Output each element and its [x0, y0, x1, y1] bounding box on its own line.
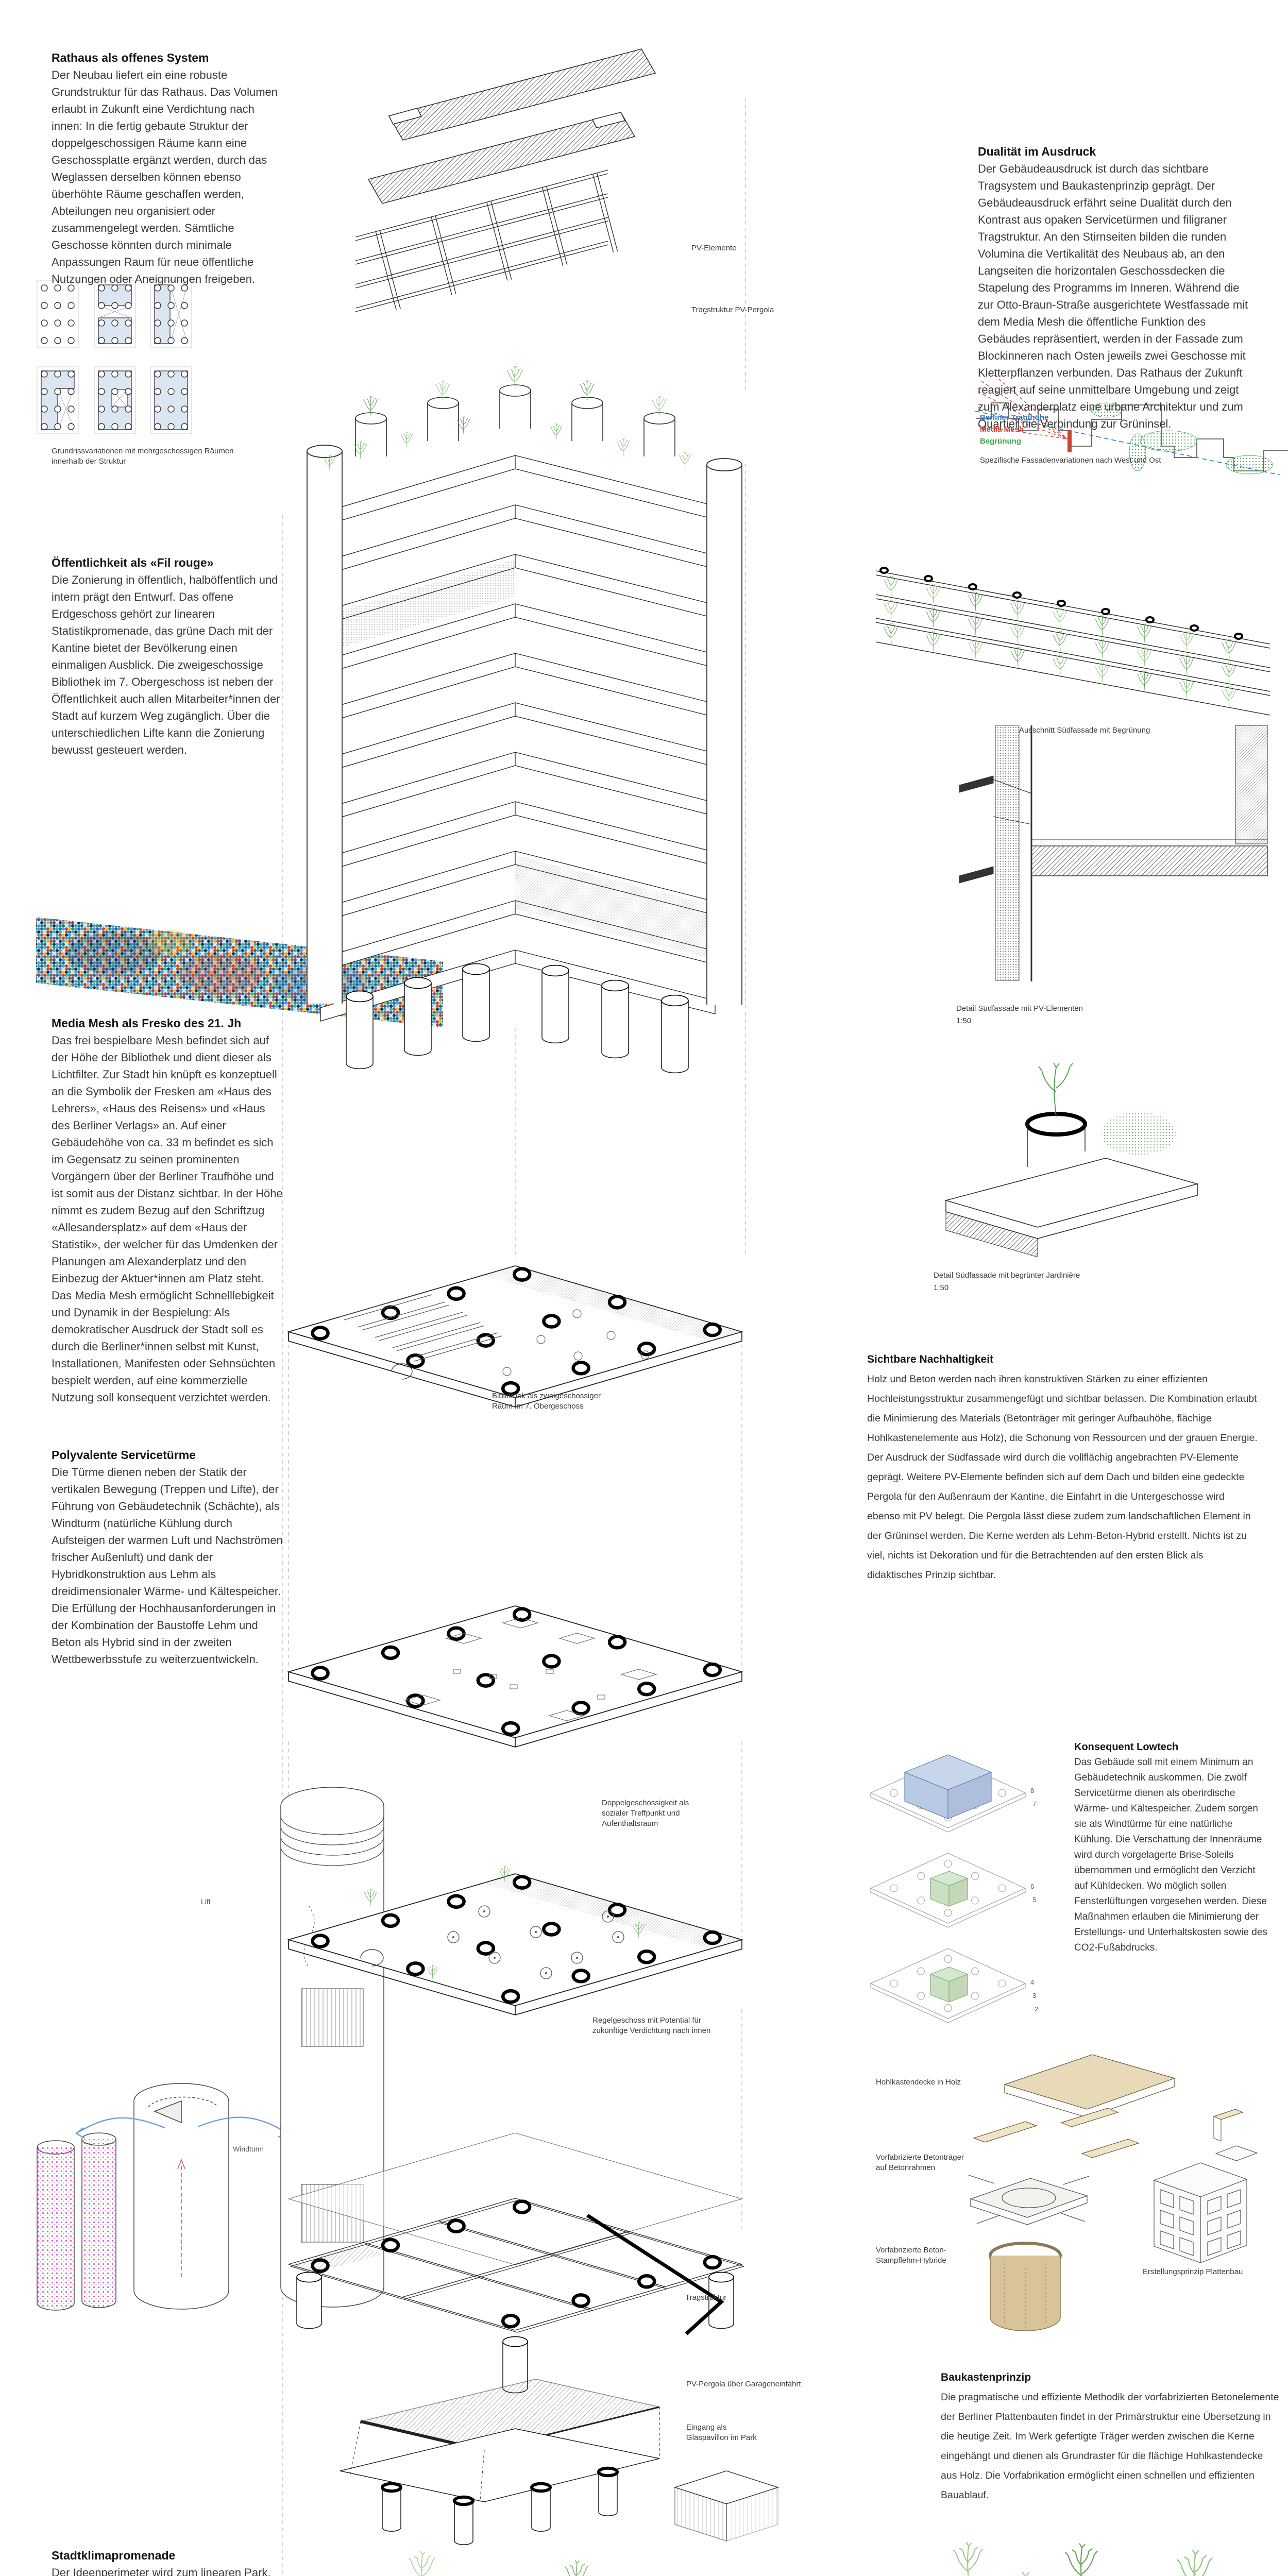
- floor-number: 5: [1032, 1896, 1036, 1904]
- label-hohlkastendecke: Hohlkastendecke in Holz: [876, 2077, 999, 2088]
- section-body: Das frei bespielbare Mesh befindet sich …: [52, 1032, 283, 1406]
- legend-media-mesh: Media Mesh: [980, 424, 1024, 435]
- section-oeffentlichkeit: Öffentlichkeit als «Fil rouge» Die Zonie…: [52, 554, 283, 758]
- caption-pv-elemente: PV-Elemente: [691, 243, 737, 253]
- section-body: Der Neubau liefert ein eine robuste Grun…: [52, 66, 278, 287]
- section-body: Die Zonierung in öffentlich, halböffentl…: [52, 571, 283, 758]
- caption-axon-regelgeschoss: Regelgeschoss mit Potential für zukünfti…: [592, 2015, 721, 2036]
- label-plattenbau: Erstellungsprinzip Plattenbau: [1143, 2267, 1277, 2277]
- section-body: Das Gebäude soll mit einem Minimum an Ge…: [1074, 1755, 1270, 1956]
- caption-detail-jardiniere: Detail Südfassade mit begrünter Jardiniè…: [934, 1270, 1129, 1281]
- caption-detail-pv: Detail Südfassade mit PV-Elementen: [956, 1004, 1126, 1014]
- caption-pergola: PV-Pergola über Garageneinfahrt: [686, 2379, 836, 2389]
- section-rathaus: Rathaus als offenes System Der Neubau li…: [52, 49, 278, 287]
- section-dualitaet: Dualität im Ausdruck Der Gebäudeausdruck…: [978, 143, 1253, 432]
- floor-number: 2: [1035, 2005, 1038, 2013]
- south-facade-cutout-drawing: [876, 568, 1270, 715]
- axon-pv-pergola: [340, 2379, 659, 2545]
- caption-eingang: Eingang als Glaspavillon im Park: [686, 2422, 769, 2443]
- section-stadtklima: Stadtklimapromenade Der Ideenperimeter w…: [52, 2547, 283, 2576]
- section-nachhaltigkeit: Sichtbare Nachhaltigkeit Holz und Beton …: [867, 1350, 1259, 1585]
- caption-pv-tragstruktur: Tragstruktur PV-Pergola: [691, 305, 774, 315]
- section-title: Polyvalente Servicetürme: [52, 1447, 283, 1464]
- floor-number: 7: [1032, 1800, 1036, 1808]
- section-lowtech: Konsequent Lowtech Das Gebäude soll mit …: [1074, 1739, 1270, 1956]
- legend-begruenung: Begrünung: [980, 436, 1021, 447]
- floor-number: 8: [1030, 1787, 1034, 1794]
- section-body: Der Ideenperimeter wird zum linearen Par…: [52, 2564, 283, 2576]
- section-title: Konsequent Lowtech: [1074, 1739, 1270, 1755]
- section-title: Sichtbare Nachhaltigkeit: [867, 1350, 1259, 1369]
- pv-pergola-exploded-drawing: [355, 49, 655, 312]
- caption-detail-pv-scale: 1:50: [956, 1016, 971, 1026]
- floor-number: 3: [1032, 1992, 1036, 1999]
- caption-axon-bibliothek: Bibliothek als zweigeschossiger Raum im …: [492, 1391, 621, 1412]
- label-windturm: Windturm: [233, 2144, 264, 2154]
- section-body: Die Türme dienen neben der Statik der ve…: [52, 1464, 283, 1668]
- section-mediamesh: Media Mesh als Fresko des 21. Jh Das fre…: [52, 1015, 283, 1406]
- section-title: Öffentlichkeit als «Fil rouge»: [52, 554, 283, 571]
- caption-tragstruktur: Tragstruktur: [685, 2293, 726, 2303]
- competition-board: Rathaus als offenes System Der Neubau li…: [0, 0, 1288, 2576]
- floor-number: 6: [1030, 1883, 1034, 1890]
- media-mesh-fresco-strip: [36, 917, 443, 1027]
- label-betontraeger: Vorfabrizierte Betonträger auf Betonrahm…: [876, 2153, 976, 2173]
- section-body: Die pragmatische und effiziente Methodik…: [941, 2387, 1281, 2505]
- caption-ausschnitt: Ausschnitt Südfassade mit Begrünung: [1019, 725, 1184, 736]
- section-body: Holz und Beton werden nach ihren konstru…: [867, 1369, 1259, 1585]
- section-title: Baukastenprinzip: [941, 2368, 1281, 2387]
- section-body: Der Gebäudeausdruck ist durch das sichtb…: [978, 160, 1253, 432]
- floor-number: 4: [1030, 1978, 1034, 1986]
- grundriss-variation-diagrams: [37, 281, 192, 434]
- label-lift: Lift: [201, 1897, 211, 1906]
- section-baukasten: Baukastenprinzip Die pragmatische und ef…: [941, 2368, 1281, 2505]
- section-serviceturme: Polyvalente Servicetürme Die Türme diene…: [52, 1447, 283, 1668]
- section-title: Media Mesh als Fresko des 21. Jh: [52, 1015, 283, 1032]
- section-title: Rathaus als offenes System: [52, 49, 278, 66]
- section-title: Stadtklimapromenade: [52, 2547, 283, 2564]
- plan-axon-office: [289, 1606, 742, 1747]
- greened-band: [515, 855, 715, 959]
- axon-eingang-pavillon: [675, 2471, 778, 2541]
- section-title: Dualität im Ausdruck: [978, 143, 1253, 160]
- caption-axon-doppelgeschoss: Doppelgeschossigkeit als sozialer Treffp…: [602, 1798, 713, 1829]
- label-stampflehm-kern: Vorfabrizierte Beton-Stampflehm-Hybride: [876, 2245, 976, 2266]
- detail-pv-drawing: [959, 725, 1267, 981]
- legend-berliner-traufhoehe: Berliner Traufhöhe: [980, 412, 1048, 423]
- caption-detail-jardiniere-scale: 1:50: [934, 1283, 948, 1293]
- service-tower-diagrams: [37, 1787, 384, 2310]
- lowtech-floor-stack-diagram: [871, 1755, 1025, 2023]
- plan-axon-bibliothek: [289, 1266, 742, 1407]
- caption-fassadenvariationen: Spezifische Fassadenvariationen nach Wes…: [980, 455, 1227, 466]
- baukasten-parts-drawing: [969, 2055, 1257, 2331]
- detail-jardiniere-drawing: [946, 1063, 1197, 1257]
- caption-grundrissvariationen: Grundrissvariationen mit mehrgeschossige…: [52, 446, 242, 467]
